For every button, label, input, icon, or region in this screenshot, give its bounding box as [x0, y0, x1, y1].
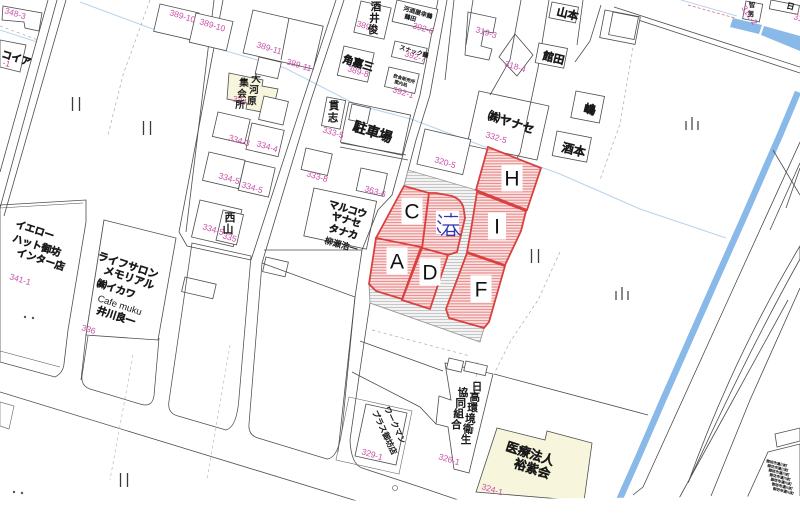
svg-text:合: 合 [451, 418, 462, 431]
svg-text:集: 集 [239, 77, 249, 89]
svg-text:I: I [494, 216, 500, 239]
svg-text:生: 生 [461, 433, 472, 446]
svg-text:男: 男 [748, 10, 755, 18]
svg-text:原: 原 [247, 96, 257, 107]
svg-text:A: A [390, 251, 404, 274]
svg-text:所: 所 [235, 100, 245, 111]
svg-text:志: 志 [328, 111, 339, 124]
svg-text:貫: 貫 [329, 100, 340, 112]
svg-text:俊: 俊 [368, 23, 379, 36]
svg-text:智: 智 [749, 0, 756, 9]
svg-text:F: F [475, 279, 488, 302]
svg-text:井: 井 [369, 12, 380, 25]
svg-text:酒: 酒 [371, 0, 382, 13]
svg-text:会: 会 [237, 88, 247, 100]
svg-text:C: C [404, 201, 419, 224]
svg-text:山: 山 [223, 223, 234, 236]
svg-text:西: 西 [225, 212, 236, 224]
svg-text:H: H [504, 168, 519, 191]
svg-text:大: 大 [251, 73, 261, 85]
svg-text:D: D [422, 262, 437, 285]
svg-text:河: 河 [249, 84, 259, 96]
